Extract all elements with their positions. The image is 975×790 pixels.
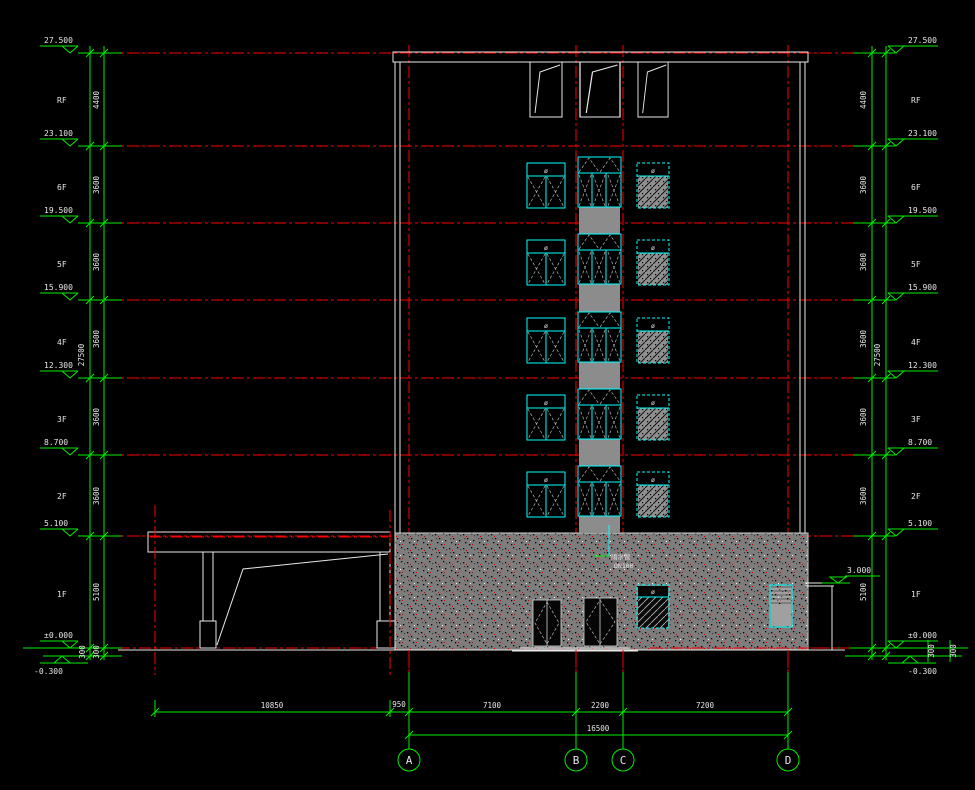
elevation-text: 5.100 [44, 519, 68, 528]
elevation-text: 5.100 [908, 519, 932, 528]
vdim-total-text: 27500 [77, 343, 86, 366]
canopy-slab [148, 532, 390, 552]
floor-label: 2F [57, 492, 67, 501]
cad-canvas: ø ø [0, 0, 975, 790]
skylight-2 [580, 62, 620, 117]
floor-label: RF [911, 96, 921, 105]
side-canopy: 3.000 [805, 566, 880, 650]
vdim-text: 300 [78, 645, 87, 659]
grid-bubble-d-label: D [785, 754, 792, 767]
elevation-text: 8.700 [908, 438, 932, 447]
vdim-text: 3600 [92, 252, 101, 271]
vdim-text: 3600 [859, 252, 868, 271]
floor-label: 3F [57, 415, 67, 424]
elevation-text: 19.500 [908, 206, 937, 215]
entrance-door-2 [584, 598, 617, 646]
window-2f-right [637, 472, 669, 517]
vdim-text: 3600 [859, 407, 868, 426]
spandrel-panel [579, 439, 620, 466]
spandrel-panel [579, 362, 620, 389]
window-3f-center [578, 389, 621, 439]
floor-label: RF [57, 96, 67, 105]
elevation-text: -0.300 [908, 667, 937, 676]
ground-vent-window: ø [637, 585, 669, 628]
floor-label: 3F [911, 415, 921, 424]
grid-bubble-stems [409, 672, 788, 749]
elevation-drawing: ø ø [0, 0, 975, 790]
bottom-dimension-system: 10850 950 7100 2200 7200 16500 A B C D [151, 672, 799, 771]
window-3f-right [637, 395, 669, 440]
window-5f-right [637, 240, 669, 285]
bottom-total-text: 16500 [587, 724, 610, 733]
window-2f-center [578, 466, 621, 516]
vdim-total-text: 27500 [873, 343, 882, 366]
vdim-text: 3600 [92, 486, 101, 505]
window-4f-left [527, 318, 565, 363]
spandrel-panel [579, 516, 620, 533]
window-5f-left [527, 240, 565, 285]
canopy-ramp-line [217, 554, 388, 645]
window-3f-left [527, 395, 565, 440]
elevation-text: 12.300 [44, 361, 73, 370]
bottom-dim-text: 7200 [696, 701, 715, 710]
vdim-text: 3600 [859, 329, 868, 348]
canopy-column-left-pedestal [200, 621, 216, 648]
pipe-note-line1: 雨水管 [611, 552, 631, 561]
window-4f-center [578, 312, 621, 362]
elevation-text: 27.500 [908, 36, 937, 45]
floor-label: 6F [911, 183, 921, 192]
bottom-dim-text: 950 [392, 700, 406, 709]
window-tag: ø [651, 588, 655, 596]
building-main [393, 52, 808, 650]
grid-lines-below-wall [409, 650, 788, 672]
grid-bubble-a-label: A [406, 754, 413, 767]
window-6f-center [578, 157, 621, 207]
elevation-text: -0.300 [34, 667, 63, 676]
canopy-column-right-pedestal [377, 621, 395, 648]
left-dimension-system: 27.500 23.100 19.500 15.900 12.300 8.700… [34, 36, 122, 676]
floor-label: 2F [911, 492, 921, 501]
vdim-text: 3600 [92, 407, 101, 426]
bottom-dim-text: 10850 [261, 701, 284, 710]
elevation-text: 27.500 [44, 36, 73, 45]
skylight-3 [638, 62, 668, 117]
floor-label: 5F [57, 260, 67, 269]
window-4f-right [637, 318, 669, 363]
elevation-text: 23.100 [908, 129, 937, 138]
elevation-text: 12.300 [908, 361, 937, 370]
elevation-text: 8.700 [44, 438, 68, 447]
vdim-text: 5100 [92, 582, 101, 601]
elevation-text: 15.900 [44, 283, 73, 292]
bottom-dim-text: 2200 [591, 701, 610, 710]
vdim-text: 4400 [92, 90, 101, 109]
vdim-text: 3600 [92, 175, 101, 194]
entrance-door-1 [533, 600, 561, 646]
vdim-text: 4400 [859, 90, 868, 109]
floor-label: 4F [57, 338, 67, 347]
vdim-text: 300 [949, 644, 958, 658]
grid-bubble-b-label: B [573, 754, 580, 767]
side-canopy-elevation: 3.000 [847, 566, 871, 575]
elevation-text: ±0.000 [44, 631, 73, 640]
elevation-text: ±0.000 [908, 631, 937, 640]
vdim-text: 5100 [859, 582, 868, 601]
vdim-text: 300 [92, 645, 101, 659]
spandrel-panel [579, 284, 620, 312]
side-canopy-marker-triangle [830, 577, 846, 583]
vdim-text: 3600 [859, 486, 868, 505]
center-bay-spandrels [579, 207, 620, 533]
elevation-text: 15.900 [908, 283, 937, 292]
vdim-text: 300 [927, 644, 936, 658]
floor-label: 5F [911, 260, 921, 269]
bottom-dim-text: 7100 [483, 701, 502, 710]
grid-bubble-c-label: C [620, 754, 627, 767]
window-5f-center [578, 234, 621, 284]
right-dimension-system: 27.500 23.100 19.500 15.900 12.300 8.700… [853, 36, 958, 676]
pipe-note-line2: DN100 [614, 562, 634, 570]
elevation-text: 23.100 [44, 129, 73, 138]
vdim-text: 3600 [859, 175, 868, 194]
grid-bubbles: A B C D [398, 749, 799, 771]
spandrel-panel [579, 207, 620, 234]
skylight-1 [530, 62, 562, 117]
window-6f-right [637, 163, 669, 208]
window-2f-left [527, 472, 565, 517]
window-6f-left [527, 163, 565, 208]
floor-label: 1F [57, 590, 67, 599]
floor-label: 6F [57, 183, 67, 192]
floor-label: 4F [911, 338, 921, 347]
floor-label: 1F [911, 590, 921, 599]
elevation-text: 19.500 [44, 206, 73, 215]
vdim-text: 3600 [92, 329, 101, 348]
